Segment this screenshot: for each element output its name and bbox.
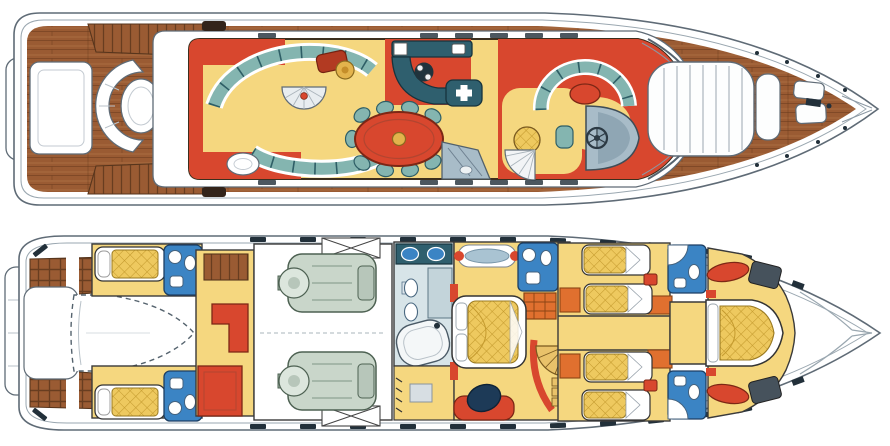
bidet [405, 303, 418, 321]
lower-deck-plan [5, 236, 880, 430]
guest-bed [584, 352, 652, 382]
crew-bunk-top [95, 247, 165, 281]
galley-island [446, 80, 482, 106]
companionway-ladder [204, 254, 248, 280]
engine-port [278, 254, 376, 312]
guest-bed [582, 390, 650, 420]
master-head [518, 243, 558, 291]
nightstand-bottom [644, 380, 657, 391]
dining-area [346, 100, 444, 178]
transom-door [30, 62, 92, 154]
nightstand-top [644, 274, 657, 285]
wicker-table [514, 127, 540, 153]
guest-bed [584, 284, 652, 314]
engine-starboard [278, 352, 376, 410]
crew-bunk-bottom [95, 385, 165, 419]
upper-deck-plan [6, 13, 878, 205]
guest-bed [582, 245, 650, 275]
crew-cabinet [198, 366, 242, 416]
master-bathroom [392, 242, 454, 370]
vip-bed [706, 300, 783, 366]
toilet [405, 279, 418, 297]
master-bed [452, 296, 526, 368]
master-closet [524, 293, 556, 319]
crew-mess [196, 250, 254, 416]
guest-bath-bottom [668, 371, 706, 419]
guest-wardrobe-top [560, 288, 580, 312]
guest-wardrobe-bottom [560, 354, 580, 378]
guest-bath-top [668, 245, 706, 293]
sink [452, 44, 465, 54]
ottoman [227, 153, 259, 175]
laundry-space [394, 366, 454, 420]
engine-room [254, 238, 392, 426]
yacht-deck-plan-figure [0, 0, 890, 446]
fridge [394, 43, 407, 55]
master-sofa [454, 245, 520, 267]
pilot-seat [556, 126, 573, 148]
settee-table [570, 84, 600, 104]
